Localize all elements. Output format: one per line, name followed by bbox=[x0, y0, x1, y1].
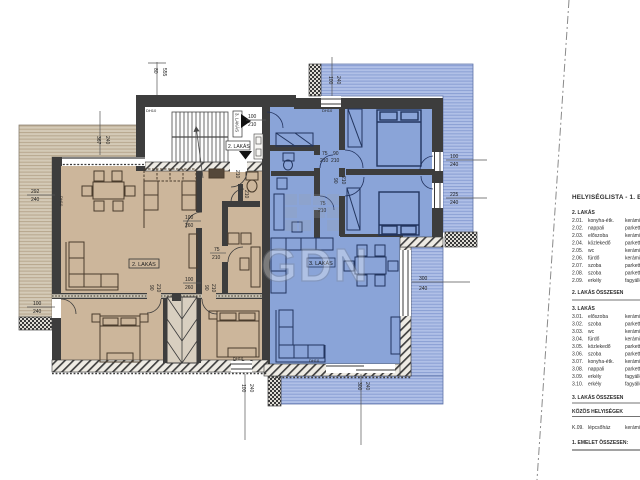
svg-text:nappali: nappali bbox=[588, 367, 604, 373]
svg-text:292: 292 bbox=[31, 189, 40, 195]
svg-text:3.05.: 3.05. bbox=[572, 344, 583, 350]
svg-text:2.03.: 2.03. bbox=[572, 233, 583, 239]
svg-text:parketta: parketta bbox=[625, 344, 640, 350]
svg-text:kerámia: kerámia bbox=[625, 337, 640, 343]
svg-text:GDN: GDN bbox=[261, 239, 369, 291]
svg-text:3.07.: 3.07. bbox=[572, 359, 583, 365]
svg-text:3.10.: 3.10. bbox=[572, 382, 583, 388]
svg-text:210: 210 bbox=[155, 284, 161, 293]
svg-text:90: 90 bbox=[203, 285, 209, 291]
svg-text:260: 260 bbox=[185, 285, 194, 291]
svg-text:100: 100 bbox=[240, 384, 246, 393]
svg-text:260: 260 bbox=[185, 223, 194, 229]
svg-text:KÖZÖS HELYISÉGEK: KÖZÖS HELYISÉGEK bbox=[572, 407, 623, 415]
svg-text:100: 100 bbox=[33, 301, 42, 307]
svg-text:kerámia: kerámia bbox=[625, 425, 640, 431]
svg-text:DH10: DH10 bbox=[146, 108, 157, 113]
svg-text:szoba: szoba bbox=[588, 271, 602, 277]
svg-text:kerámia: kerámia bbox=[625, 256, 640, 262]
svg-text:fürdő: fürdő bbox=[588, 256, 600, 262]
svg-text:100: 100 bbox=[327, 76, 333, 85]
svg-text:konyha-étk.: konyha-étk. bbox=[588, 359, 614, 365]
svg-text:2.06.: 2.06. bbox=[572, 256, 583, 262]
svg-text:parketta: parketta bbox=[625, 226, 640, 232]
svg-text:3.01.: 3.01. bbox=[572, 314, 583, 320]
svg-text:2.04.: 2.04. bbox=[572, 241, 583, 247]
svg-text:kerámia: kerámia bbox=[625, 248, 640, 254]
svg-text:előszoba: előszoba bbox=[588, 314, 608, 320]
svg-text:2. LAKÁS: 2. LAKÁS bbox=[132, 261, 156, 268]
svg-text:3.08.: 3.08. bbox=[572, 367, 583, 373]
svg-text:100: 100 bbox=[248, 114, 257, 120]
svg-text:kerámia: kerámia bbox=[625, 329, 640, 335]
svg-text:3.03.: 3.03. bbox=[572, 329, 583, 335]
svg-text:konyha-étk.: konyha-étk. bbox=[588, 218, 614, 224]
svg-text:nappali: nappali bbox=[588, 226, 604, 232]
svg-text:parketta: parketta bbox=[625, 241, 640, 247]
svg-text:100: 100 bbox=[185, 215, 194, 221]
svg-text:HELYISÉGLISTA - 1. EMELET: HELYISÉGLISTA - 1. EMELET bbox=[572, 192, 640, 201]
svg-text:2. LAKÁS ÖSSZESEN: 2. LAKÁS ÖSSZESEN bbox=[572, 289, 624, 296]
svg-text:erkély: erkély bbox=[588, 278, 602, 284]
svg-text:100: 100 bbox=[185, 277, 194, 283]
svg-text:210: 210 bbox=[234, 170, 240, 179]
svg-text:K.09.: K.09. bbox=[572, 425, 584, 431]
svg-text:240: 240 bbox=[419, 286, 428, 292]
svg-text:210: 210 bbox=[340, 176, 346, 185]
svg-text:240: 240 bbox=[450, 162, 459, 168]
svg-text:közlekedő: közlekedő bbox=[588, 344, 611, 350]
svg-text:DH10: DH10 bbox=[59, 196, 64, 207]
svg-text:parketta: parketta bbox=[625, 271, 640, 277]
svg-text:fagyálló: fagyálló bbox=[625, 278, 640, 284]
svg-text:3. LAKÁS: 3. LAKÁS bbox=[572, 305, 595, 312]
svg-text:3.06.: 3.06. bbox=[572, 352, 583, 358]
svg-text:2.01.: 2.01. bbox=[572, 218, 583, 224]
svg-text:240: 240 bbox=[104, 136, 110, 145]
svg-text:parketta: parketta bbox=[625, 352, 640, 358]
svg-text:3. LAKÁS ÖSSZESEN: 3. LAKÁS ÖSSZESEN bbox=[572, 394, 624, 401]
svg-text:367: 367 bbox=[95, 136, 101, 145]
svg-text:210: 210 bbox=[331, 158, 340, 164]
svg-text:240: 240 bbox=[364, 382, 370, 391]
svg-text:80: 80 bbox=[152, 68, 158, 74]
svg-text:fagyálló: fagyálló bbox=[625, 374, 640, 380]
svg-text:2.08.: 2.08. bbox=[572, 271, 583, 277]
svg-text:2.02.: 2.02. bbox=[572, 226, 583, 232]
svg-text:2.05.: 2.05. bbox=[572, 248, 583, 254]
svg-text:240: 240 bbox=[335, 76, 341, 85]
svg-text:3.04.: 3.04. bbox=[572, 337, 583, 343]
svg-text:kerámia: kerámia bbox=[625, 233, 640, 239]
svg-text:210: 210 bbox=[210, 284, 216, 293]
svg-text:szoba: szoba bbox=[588, 263, 602, 269]
svg-text:210: 210 bbox=[212, 255, 221, 261]
svg-text:1. EMELET ÖSSZESEN:: 1. EMELET ÖSSZESEN: bbox=[572, 439, 628, 446]
svg-text:3.02.: 3.02. bbox=[572, 322, 583, 328]
svg-text:erkély: erkély bbox=[588, 382, 602, 388]
svg-text:közlekedő: közlekedő bbox=[588, 241, 611, 247]
svg-text:300: 300 bbox=[356, 382, 362, 391]
svg-text:DH10: DH10 bbox=[233, 356, 244, 361]
svg-text:parketta: parketta bbox=[625, 367, 640, 373]
svg-text:kerámia: kerámia bbox=[625, 314, 640, 320]
svg-text:kerámia: kerámia bbox=[625, 359, 640, 365]
svg-text:210: 210 bbox=[243, 190, 249, 199]
svg-text:erkély: erkély bbox=[588, 374, 602, 380]
svg-text:2.07.: 2.07. bbox=[572, 263, 583, 269]
svg-text:90: 90 bbox=[332, 178, 338, 184]
svg-text:2. LAKÁS: 2. LAKÁS bbox=[572, 209, 595, 216]
svg-text:210: 210 bbox=[320, 158, 329, 164]
svg-text:100: 100 bbox=[450, 154, 459, 160]
svg-text:240: 240 bbox=[450, 200, 459, 206]
svg-text:wc: wc bbox=[588, 248, 595, 254]
svg-text:szoba: szoba bbox=[588, 322, 602, 328]
svg-text:3.09.: 3.09. bbox=[572, 374, 583, 380]
svg-text:2. LAKÁS: 2. LAKÁS bbox=[228, 143, 250, 150]
svg-text:parketta: parketta bbox=[625, 263, 640, 269]
svg-text:240: 240 bbox=[33, 309, 42, 315]
svg-text:90: 90 bbox=[148, 285, 154, 291]
svg-text:szoba: szoba bbox=[588, 352, 602, 358]
svg-text:fürdő: fürdő bbox=[588, 337, 600, 343]
svg-text:2.09.: 2.09. bbox=[572, 278, 583, 284]
svg-text:DH10: DH10 bbox=[322, 108, 333, 113]
svg-text:555: 555 bbox=[161, 68, 167, 77]
svg-text:fagyálló: fagyálló bbox=[625, 382, 640, 388]
svg-text:210: 210 bbox=[248, 122, 257, 128]
svg-text:75: 75 bbox=[322, 151, 328, 157]
svg-text:3. LAKÁS: 3. LAKÁS bbox=[235, 113, 240, 132]
svg-text:lépcsőház: lépcsőház bbox=[588, 425, 611, 431]
svg-text:parketta: parketta bbox=[625, 322, 640, 328]
svg-text:225: 225 bbox=[450, 192, 459, 198]
svg-text:300: 300 bbox=[419, 276, 428, 282]
svg-text:75: 75 bbox=[214, 247, 220, 253]
svg-text:előszoba: előszoba bbox=[588, 233, 608, 239]
svg-text:wc: wc bbox=[588, 329, 595, 335]
svg-text:240: 240 bbox=[248, 384, 254, 393]
svg-text:kerámia: kerámia bbox=[625, 218, 640, 224]
svg-text:DH10: DH10 bbox=[309, 358, 320, 363]
svg-text:240: 240 bbox=[31, 197, 40, 203]
svg-text:90: 90 bbox=[333, 151, 339, 157]
